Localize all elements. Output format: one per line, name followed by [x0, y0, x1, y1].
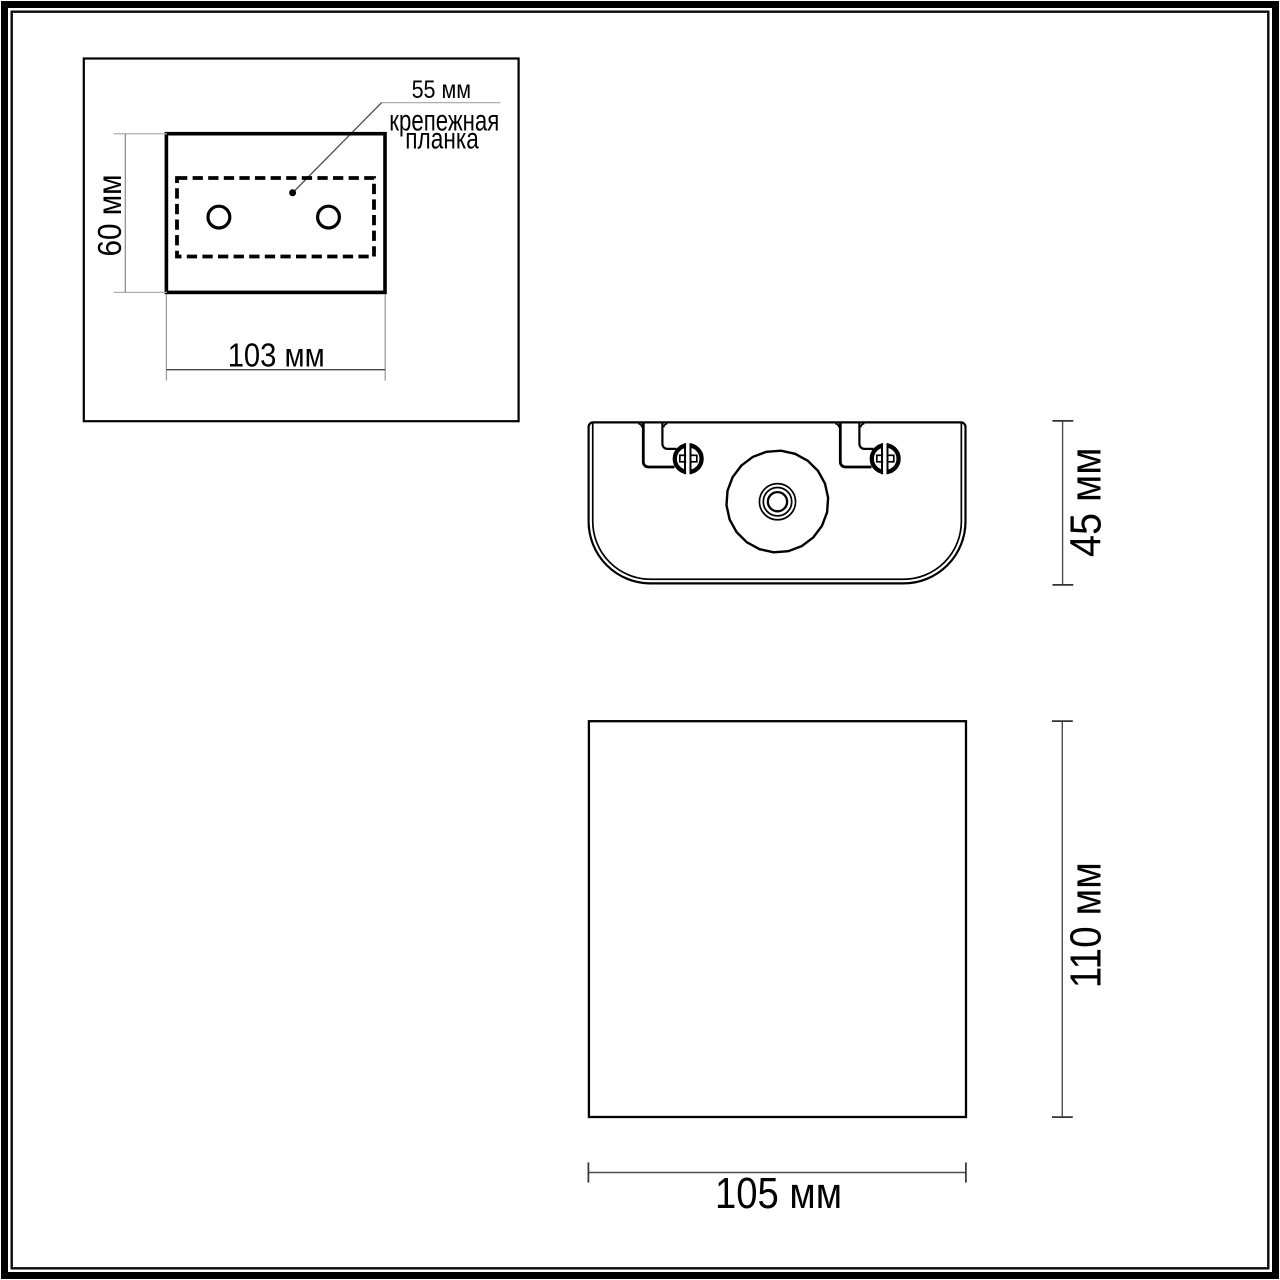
svg-text:планка: планка: [405, 122, 479, 155]
svg-text:105 мм: 105 мм: [715, 1169, 842, 1218]
svg-text:45 мм: 45 мм: [1062, 448, 1111, 558]
svg-text:110 мм: 110 мм: [1061, 862, 1110, 988]
svg-text:103 мм: 103 мм: [228, 337, 325, 374]
svg-text:55 мм: 55 мм: [412, 76, 472, 104]
svg-text:60 мм: 60 мм: [91, 175, 128, 257]
